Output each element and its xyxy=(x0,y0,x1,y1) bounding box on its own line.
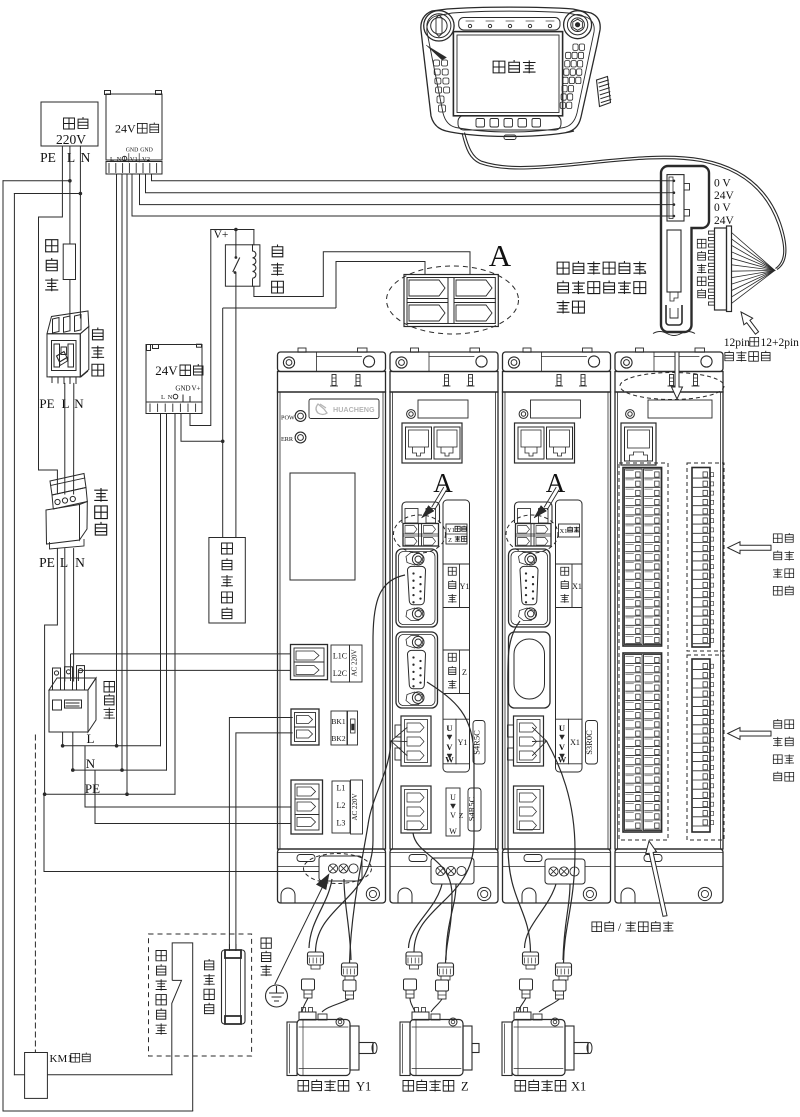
svg-text:X1: X1 xyxy=(571,1080,586,1094)
svg-text:L2: L2 xyxy=(337,801,346,810)
svg-text:L: L xyxy=(161,394,165,401)
svg-text:X1: X1 xyxy=(572,582,582,591)
svg-text:L2C: L2C xyxy=(333,669,347,678)
svg-text:GND: GND xyxy=(175,385,190,393)
svg-text:W: W xyxy=(449,827,457,836)
svg-text:L: L xyxy=(67,150,75,165)
svg-text:L: L xyxy=(60,555,68,570)
svg-text:N: N xyxy=(75,555,85,570)
svg-text:L3: L3 xyxy=(337,819,346,828)
svg-text:N: N xyxy=(86,756,96,771)
svg-text:,: , xyxy=(643,261,647,276)
svg-text:220V: 220V xyxy=(56,132,86,147)
svg-text:0 V: 0 V xyxy=(714,202,731,214)
svg-text:AC 220V: AC 220V xyxy=(351,649,359,676)
svg-text:ERR: ERR xyxy=(281,436,294,443)
svg-text:N: N xyxy=(81,150,91,165)
svg-text:A: A xyxy=(546,468,566,498)
svg-text:24V: 24V xyxy=(714,190,735,202)
svg-text:X1: X1 xyxy=(570,738,580,747)
svg-text:Z: Z xyxy=(448,537,452,544)
svg-text:Z: Z xyxy=(459,811,464,820)
svg-text:Z: Z xyxy=(461,1080,469,1094)
svg-text:L1: L1 xyxy=(337,784,346,793)
svg-text:V+: V+ xyxy=(191,385,200,393)
svg-text:L: L xyxy=(62,396,70,411)
svg-text:24V: 24V xyxy=(155,363,178,378)
svg-text:Y1: Y1 xyxy=(356,1080,371,1094)
svg-text:X1: X1 xyxy=(560,528,568,535)
svg-text:A: A xyxy=(433,468,453,498)
svg-text:V: V xyxy=(450,811,456,820)
svg-text:PE: PE xyxy=(39,555,55,570)
svg-text:N: N xyxy=(168,394,173,401)
svg-text:12pin: 12pin xyxy=(724,337,750,349)
svg-text:A: A xyxy=(489,238,512,273)
svg-text:KM1: KM1 xyxy=(50,1053,73,1065)
svg-text:AC 220V: AC 220V xyxy=(351,793,359,820)
svg-text:PE: PE xyxy=(39,396,54,411)
svg-text:12+2pin: 12+2pin xyxy=(761,337,800,349)
svg-text:V: V xyxy=(559,742,566,752)
svg-text:BK1: BK1 xyxy=(331,717,345,726)
svg-text:N: N xyxy=(74,396,84,411)
svg-text:V+: V+ xyxy=(214,229,229,241)
svg-text:S3R0C: S3R0C xyxy=(584,730,594,755)
svg-text:U: U xyxy=(450,793,456,802)
svg-text:PE: PE xyxy=(40,150,56,165)
svg-text:GND: GND xyxy=(140,148,153,154)
svg-text:U: U xyxy=(446,723,452,733)
svg-text:24V: 24V xyxy=(714,215,735,227)
svg-text:GND: GND xyxy=(126,148,139,154)
svg-text:U: U xyxy=(559,723,565,733)
svg-text:W: W xyxy=(558,755,567,765)
svg-text:HUACHENG: HUACHENG xyxy=(333,405,375,414)
svg-text:Z: Z xyxy=(462,668,467,677)
svg-text:24V: 24V xyxy=(115,122,136,136)
svg-text:0 V: 0 V xyxy=(714,178,731,190)
svg-text:V: V xyxy=(446,742,453,752)
svg-text:Y1: Y1 xyxy=(447,527,455,534)
svg-text:L: L xyxy=(87,731,95,746)
svg-text:Y1: Y1 xyxy=(460,582,470,591)
svg-text:S4R5C: S4R5C xyxy=(467,796,477,821)
svg-text:W: W xyxy=(445,755,454,765)
svg-text:BK2: BK2 xyxy=(331,734,345,743)
svg-text:Y1: Y1 xyxy=(458,738,468,747)
svg-text:POW: POW xyxy=(281,415,295,422)
svg-text:L1C: L1C xyxy=(333,652,347,661)
